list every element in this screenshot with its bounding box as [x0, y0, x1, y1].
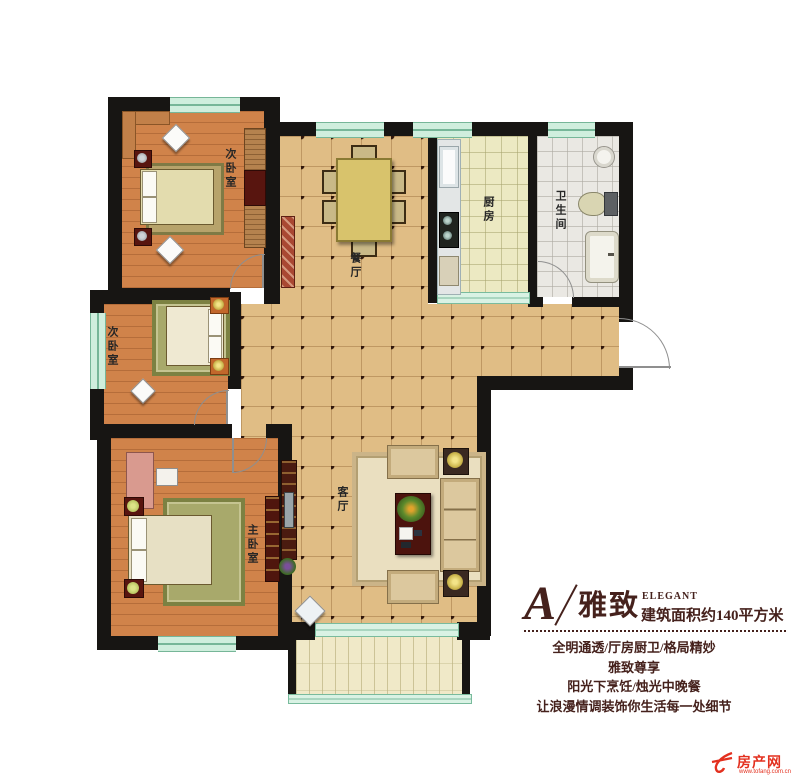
entry-door-leaf [619, 366, 671, 368]
kitchen-window [413, 122, 472, 138]
wall-segment [572, 297, 619, 307]
wall-segment [619, 368, 633, 390]
flower-bouquet [397, 496, 425, 522]
lamp [127, 500, 139, 512]
master-bedroom-window [158, 636, 236, 652]
tv-screen [284, 492, 294, 528]
hall-runner [281, 216, 295, 288]
room-label-bedroom1: 次卧室 [224, 148, 235, 190]
master-pillows [131, 518, 147, 582]
bedroom1-window [170, 97, 240, 113]
watermark-logo-icon [710, 750, 736, 779]
area-line: 建筑面积约140平方米 [641, 604, 784, 625]
taglines: 全明通透/厅房厨卫/格局精妙 雅致尊享 阳光下烹饪/烛光中晚餐 让浪漫情调装饰你… [498, 637, 770, 715]
floor-lamp [447, 574, 463, 590]
master-tv-cabinet [265, 496, 280, 582]
room-label-bathroom: 卫生间 [554, 190, 565, 232]
unit-name-en: ELEGANT [642, 591, 698, 602]
room-label-kitchen: 厨房 [482, 196, 493, 224]
bedroom1-pillows [142, 171, 157, 223]
lamp [213, 360, 224, 371]
watermark: 房产网 www.tofang.com.cn [710, 748, 798, 778]
dining-window [316, 122, 384, 138]
wall-segment [537, 297, 543, 307]
balcony-glass [288, 694, 472, 704]
toilet-tank [604, 192, 618, 216]
burner [443, 231, 452, 240]
lamp [137, 153, 147, 163]
papers [399, 527, 413, 540]
wardrobe-center [244, 170, 266, 206]
balcony-sliding-door [315, 623, 459, 637]
master-door-leaf [232, 438, 234, 472]
bedroom2-pillows [208, 309, 222, 363]
dining-table [336, 158, 392, 242]
armchair [387, 445, 439, 479]
wall-segment [462, 636, 470, 702]
floor-lamp [447, 452, 463, 468]
bedroom2-door-leaf [226, 390, 228, 424]
watermark-url: www.tofang.com.cn [739, 769, 791, 775]
bedroom1-door-leaf [262, 254, 264, 288]
wall-segment [477, 376, 633, 390]
lamp [127, 582, 139, 594]
plant [279, 558, 296, 575]
wall-segment [90, 424, 232, 438]
kitchen-appliance [439, 256, 459, 286]
balcony-floor [296, 636, 462, 694]
wall-segment [108, 97, 122, 302]
burner [443, 216, 452, 225]
tagline-line: 雅致尊享 [498, 657, 770, 677]
title-divider [524, 630, 786, 632]
armchair [387, 570, 439, 604]
floor-plan-page: 次卧室 次卧室 主卧室 餐厅 厨房 卫生间 客厅 A 雅致 ELEGANT 建筑… [0, 0, 800, 781]
room-label-living: 客厅 [336, 486, 347, 514]
tagline-line: 让浪漫情调装饰你生活每一处细节 [498, 696, 770, 716]
bathtub [585, 231, 619, 283]
toilet [578, 192, 606, 216]
entry-door-arc [619, 318, 670, 369]
wall-segment [97, 438, 111, 650]
dresser-stool [156, 468, 178, 486]
unit-letter: A [524, 580, 556, 628]
room-label-dining: 餐厅 [349, 252, 360, 280]
title-slash [554, 584, 577, 626]
wash-basin [593, 146, 615, 168]
wall-segment [528, 136, 537, 307]
kitchen-sink [439, 146, 459, 188]
lamp [213, 299, 224, 310]
lamp [137, 231, 147, 241]
tagline-line: 全明通透/厅房厨卫/格局精妙 [498, 637, 770, 657]
wall-segment [619, 122, 633, 322]
sofa [440, 478, 480, 572]
wall-segment [288, 636, 296, 702]
remote [414, 530, 422, 536]
bedroom2-window [90, 313, 106, 389]
room-label-bedroom2: 次卧室 [106, 326, 117, 368]
wall-segment [428, 136, 437, 303]
bathroom-window [548, 122, 595, 138]
tagline-line: 阳光下烹饪/烛光中晚餐 [498, 676, 770, 696]
bathtub-drain [608, 253, 614, 256]
unit-name: 雅致 [578, 592, 640, 621]
tray [401, 542, 411, 548]
room-label-master: 主卧室 [246, 524, 257, 566]
